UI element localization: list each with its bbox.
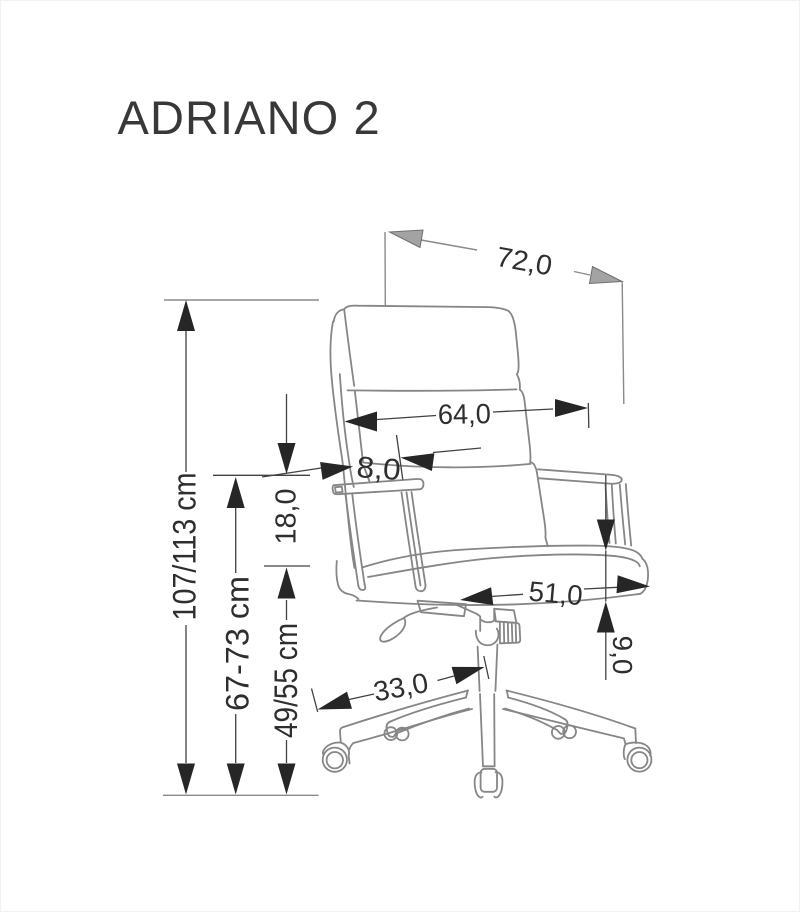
svg-text:18,0: 18,0 xyxy=(271,489,303,545)
svg-text:51,0: 51,0 xyxy=(527,576,583,612)
svg-text:ADRIANO 2: ADRIANO 2 xyxy=(118,91,381,144)
svg-text:67-73 cm: 67-73 cm xyxy=(220,576,256,711)
svg-text:9,0: 9,0 xyxy=(607,636,638,675)
svg-text:64,0: 64,0 xyxy=(438,398,492,430)
svg-text:8,0: 8,0 xyxy=(356,451,402,487)
svg-text:49/55 cm: 49/55 cm xyxy=(268,623,304,738)
svg-text:107/113 cm: 107/113 cm xyxy=(167,473,203,621)
